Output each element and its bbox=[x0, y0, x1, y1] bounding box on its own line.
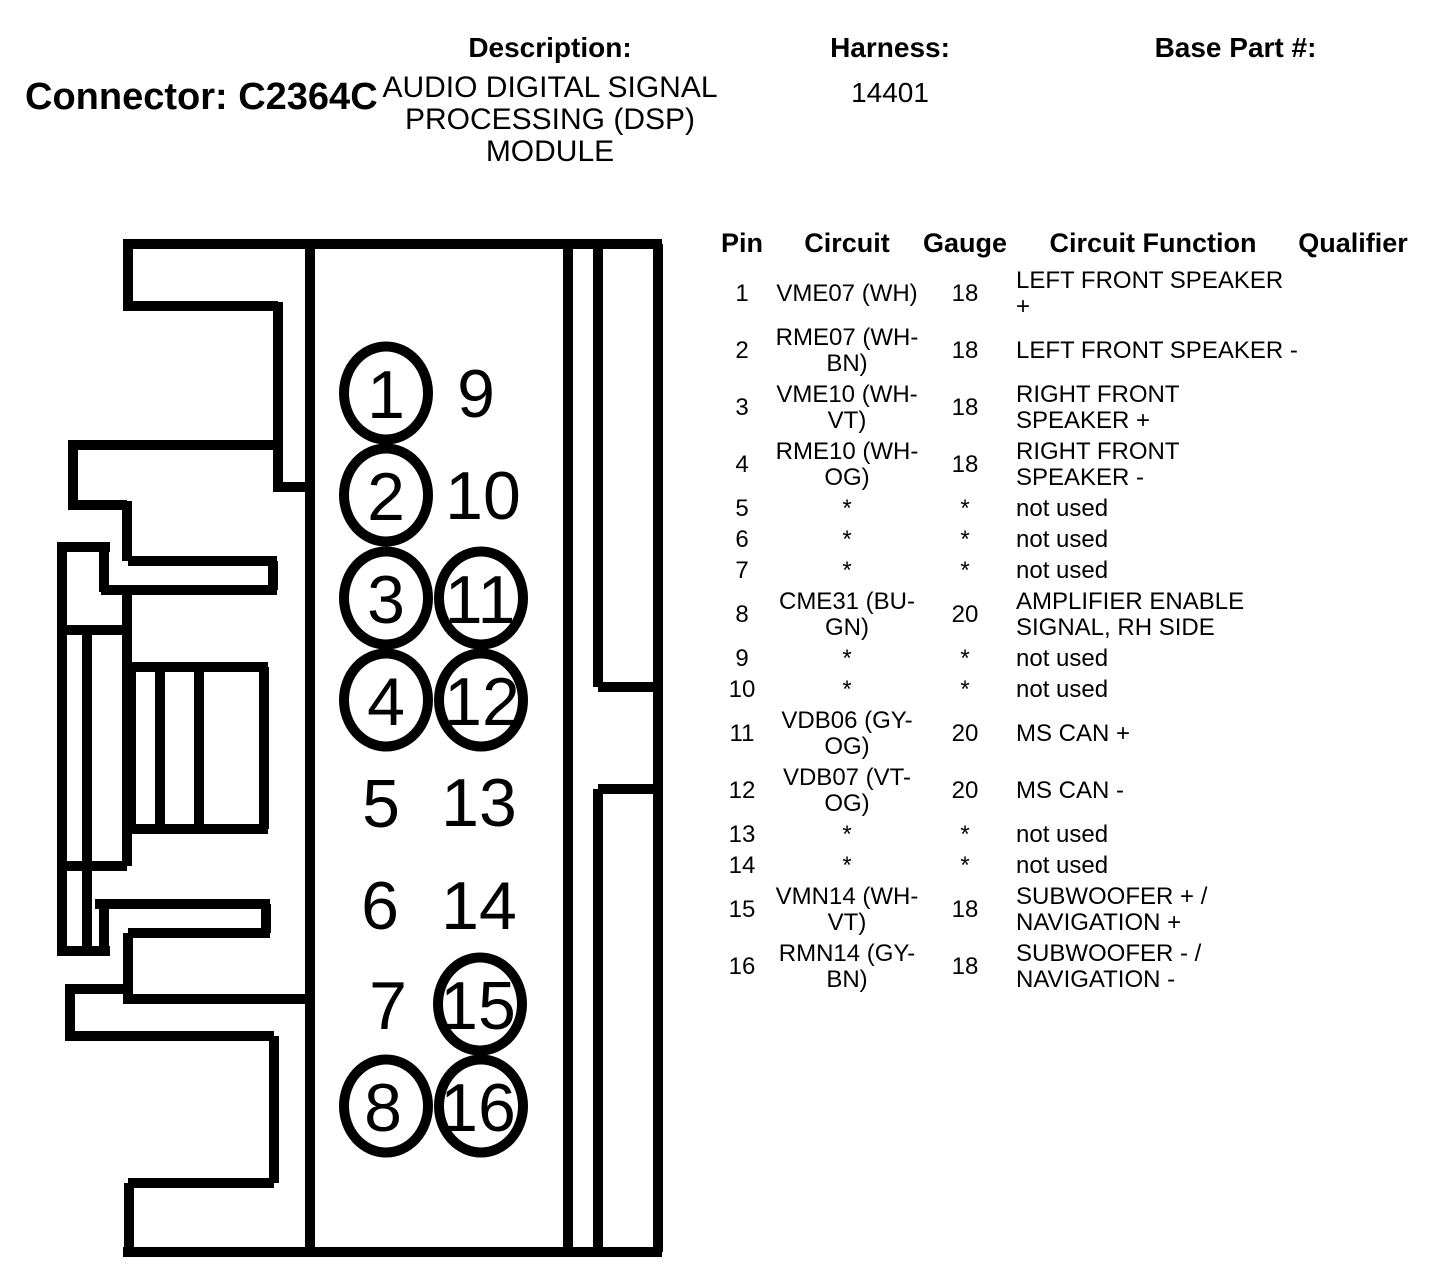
pin-cell: 13 bbox=[712, 822, 772, 848]
circuit-cell: VMN14 (WH- VT) bbox=[772, 884, 922, 936]
pin-number-label: 8 bbox=[364, 1070, 402, 1146]
function-cell: not used bbox=[1008, 527, 1298, 553]
table-row: 4 RME10 (WH- OG) 18 RIGHT FRONT SPEAKER … bbox=[712, 439, 1412, 491]
connector-outline bbox=[57, 244, 662, 1252]
gauge-cell: 18 bbox=[922, 954, 1008, 980]
table-row: 6 * * not used bbox=[712, 527, 1412, 553]
function-cell: not used bbox=[1008, 677, 1298, 703]
circuit-cell: VDB07 (VT- OG) bbox=[772, 765, 922, 817]
function-cell: RIGHT FRONT SPEAKER - bbox=[1008, 439, 1298, 491]
base-part-block: Base Part #: bbox=[1143, 32, 1328, 105]
function-cell: not used bbox=[1008, 822, 1298, 848]
function-cell: AMPLIFIER ENABLE SIGNAL, RH SIDE bbox=[1008, 589, 1298, 641]
pin-number-label: 9 bbox=[457, 356, 495, 432]
table-row: 1 VME07 (WH) 18 LEFT FRONT SPEAKER + bbox=[712, 268, 1412, 320]
table-row: 9 * * not used bbox=[712, 646, 1412, 672]
pin-cell: 11 bbox=[712, 721, 772, 747]
pin-cell: 9 bbox=[712, 646, 772, 672]
circuit-cell: RMN14 (GY- BN) bbox=[772, 941, 922, 993]
gauge-cell: 20 bbox=[922, 721, 1008, 747]
pin-cell: 10 bbox=[712, 677, 772, 703]
pin-cell: 1 bbox=[712, 281, 772, 307]
gauge-cell: * bbox=[922, 646, 1008, 672]
circuit-cell: * bbox=[772, 677, 922, 703]
pin-number-label: 14 bbox=[441, 868, 517, 944]
function-cell: not used bbox=[1008, 853, 1298, 879]
pin-cell: 2 bbox=[712, 338, 772, 364]
gauge-cell: 18 bbox=[922, 395, 1008, 421]
circuit-cell: VME07 (WH) bbox=[772, 281, 922, 307]
base-part-label: Base Part #: bbox=[1143, 32, 1328, 64]
circuit-cell: VME10 (WH- VT) bbox=[772, 382, 922, 434]
circuit-cell: VDB06 (GY- OG) bbox=[772, 708, 922, 760]
circuit-cell: * bbox=[772, 822, 922, 848]
pin-number-label: 4 bbox=[367, 664, 405, 740]
pin-number-label: 3 bbox=[367, 562, 405, 638]
table-row: 14 * * not used bbox=[712, 853, 1412, 879]
pin-number-label: 11 bbox=[445, 562, 516, 638]
circuit-cell: RME10 (WH- OG) bbox=[772, 439, 922, 491]
column-header-pin: Pin bbox=[712, 228, 772, 259]
base-part-value bbox=[1143, 77, 1328, 105]
circuit-cell: CME31 (BU- GN) bbox=[772, 589, 922, 641]
pin-number-label: 7 bbox=[369, 968, 407, 1044]
gauge-cell: * bbox=[922, 853, 1008, 879]
gauge-cell: * bbox=[922, 677, 1008, 703]
pin-number-label: 16 bbox=[440, 1070, 516, 1146]
column-header-circuit: Circuit bbox=[772, 228, 922, 259]
table-row: 5 * * not used bbox=[712, 496, 1412, 522]
table-row: 3 VME10 (WH- VT) 18 RIGHT FRONT SPEAKER … bbox=[712, 382, 1412, 434]
function-cell: not used bbox=[1008, 496, 1298, 522]
pin-number-label: 6 bbox=[361, 868, 399, 944]
column-header-gauge: Gauge bbox=[922, 228, 1008, 259]
pin-number-label: 13 bbox=[441, 765, 517, 841]
pin-number-label: 15 bbox=[440, 968, 516, 1044]
harness-label: Harness: bbox=[820, 32, 960, 64]
circuit-cell: * bbox=[772, 496, 922, 522]
function-cell: RIGHT FRONT SPEAKER + bbox=[1008, 382, 1298, 434]
function-cell: LEFT FRONT SPEAKER + bbox=[1008, 268, 1298, 320]
pin-number-label: 12 bbox=[444, 664, 520, 740]
table-row: 2 RME07 (WH- BN) 18 LEFT FRONT SPEAKER - bbox=[712, 325, 1412, 377]
pin-number-label: 10 bbox=[445, 458, 521, 534]
table-row: 7 * * not used bbox=[712, 558, 1412, 584]
function-cell: not used bbox=[1008, 646, 1298, 672]
gauge-cell: * bbox=[922, 527, 1008, 553]
table-row: 10 * * not used bbox=[712, 677, 1412, 703]
pin-cell: 15 bbox=[712, 897, 772, 923]
table-row: 13 * * not used bbox=[712, 822, 1412, 848]
function-cell: SUBWOOFER + / NAVIGATION + bbox=[1008, 884, 1298, 936]
gauge-cell: 20 bbox=[922, 778, 1008, 804]
connector-pinout-page: Connector: C2364C Description: AUDIO DIG… bbox=[0, 0, 1440, 1284]
pin-number-label: 1 bbox=[367, 357, 405, 433]
function-cell: LEFT FRONT SPEAKER - bbox=[1008, 338, 1298, 364]
connector-diagram: 1 2 3 4 5 6 7 8 9 10 11 12 13 14 15 16 bbox=[0, 0, 720, 1284]
pin-number-label: 5 bbox=[362, 766, 400, 842]
table-row: 15 VMN14 (WH- VT) 18 SUBWOOFER + / NAVIG… bbox=[712, 884, 1412, 936]
pin-cell: 4 bbox=[712, 452, 772, 478]
pin-cell: 8 bbox=[712, 602, 772, 628]
function-cell: MS CAN + bbox=[1008, 721, 1298, 747]
circuit-cell: * bbox=[772, 527, 922, 553]
circuit-cell: RME07 (WH- BN) bbox=[772, 325, 922, 377]
gauge-cell: 18 bbox=[922, 897, 1008, 923]
column-header-function: Circuit Function bbox=[1008, 228, 1298, 259]
column-header-qualifier: Qualifier bbox=[1298, 228, 1408, 259]
gauge-cell: * bbox=[922, 496, 1008, 522]
pin-cell: 5 bbox=[712, 496, 772, 522]
pin-table: Pin Circuit Gauge Circuit Function Quali… bbox=[712, 228, 1412, 998]
table-header-row: Pin Circuit Gauge Circuit Function Quali… bbox=[712, 228, 1412, 259]
pin-number-label: 2 bbox=[367, 459, 405, 535]
table-row: 8 CME31 (BU- GN) 20 AMPLIFIER ENABLE SIG… bbox=[712, 589, 1412, 641]
gauge-cell: 18 bbox=[922, 452, 1008, 478]
function-cell: SUBWOOFER - / NAVIGATION - bbox=[1008, 941, 1298, 993]
pin-cell: 3 bbox=[712, 395, 772, 421]
pin-cell: 7 bbox=[712, 558, 772, 584]
harness-value: 14401 bbox=[820, 77, 960, 109]
gauge-cell: 18 bbox=[922, 281, 1008, 307]
circuit-cell: * bbox=[772, 646, 922, 672]
table-row: 11 VDB06 (GY- OG) 20 MS CAN + bbox=[712, 708, 1412, 760]
harness-block: Harness: 14401 bbox=[820, 32, 960, 109]
circuit-cell: * bbox=[772, 558, 922, 584]
pin-cell: 12 bbox=[712, 778, 772, 804]
function-cell: MS CAN - bbox=[1008, 778, 1298, 804]
table-row: 12 VDB07 (VT- OG) 20 MS CAN - bbox=[712, 765, 1412, 817]
gauge-cell: 20 bbox=[922, 602, 1008, 628]
gauge-cell: 18 bbox=[922, 338, 1008, 364]
pin-cell: 16 bbox=[712, 954, 772, 980]
function-cell: not used bbox=[1008, 558, 1298, 584]
pin-cell: 6 bbox=[712, 527, 772, 553]
circuit-cell: * bbox=[772, 853, 922, 879]
gauge-cell: * bbox=[922, 558, 1008, 584]
pin-cell: 14 bbox=[712, 853, 772, 879]
gauge-cell: * bbox=[922, 822, 1008, 848]
table-row: 16 RMN14 (GY- BN) 18 SUBWOOFER - / NAVIG… bbox=[712, 941, 1412, 993]
